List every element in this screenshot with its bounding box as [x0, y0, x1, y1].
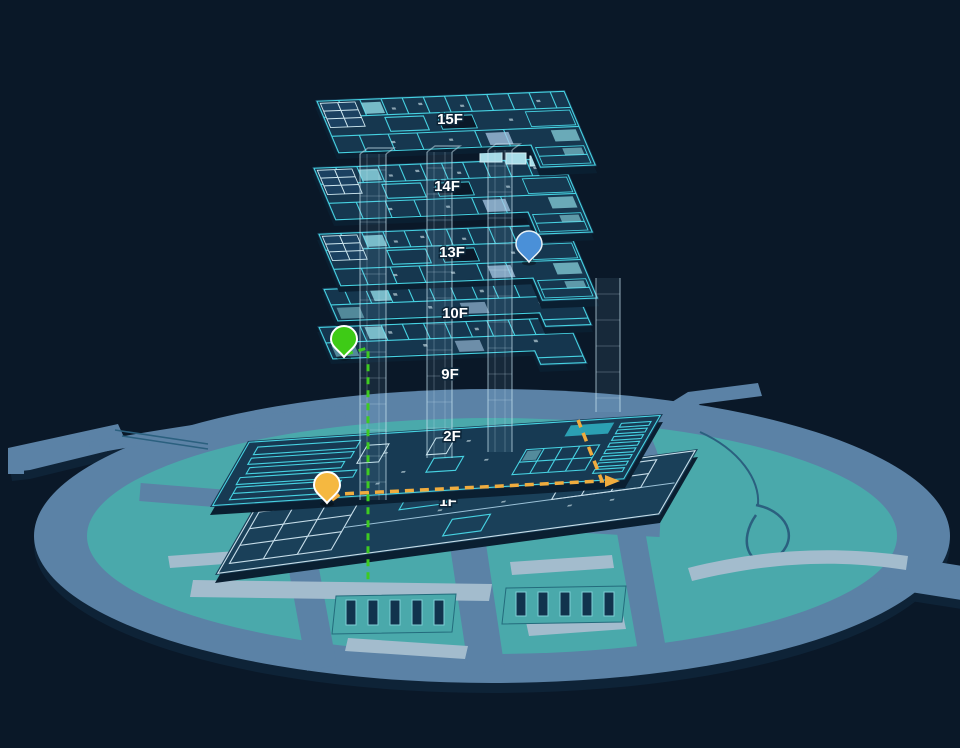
floor-label-14f[interactable]: 14F [434, 178, 460, 195]
parking-block-left [332, 594, 456, 634]
map-canvas[interactable]: 1F [0, 0, 960, 748]
shaft [596, 278, 620, 412]
parking-block-right [502, 586, 626, 624]
floor-label-15f[interactable]: 15F [437, 111, 463, 128]
floor-map-svg: 1F [0, 0, 960, 748]
floor-label-13f[interactable]: 13F [439, 244, 465, 261]
floor-label-2f[interactable]: 2F [443, 428, 461, 445]
floor-label-9f[interactable]: 9F [441, 366, 459, 383]
floor-label-10f[interactable]: 10F [442, 305, 468, 322]
